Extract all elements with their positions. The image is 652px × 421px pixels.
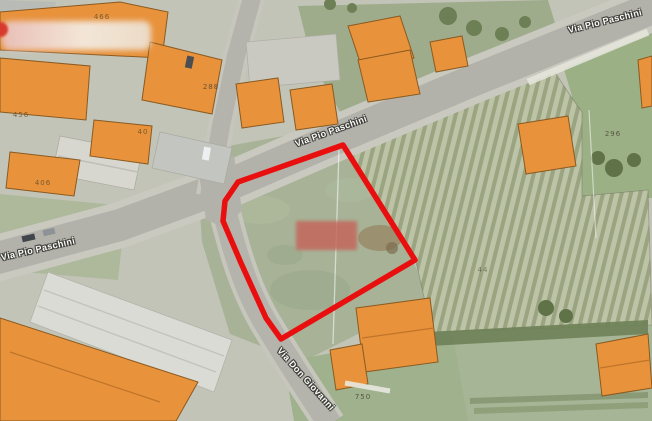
redaction-blur-parcel-label — [296, 221, 357, 250]
parcel-number: 296 — [605, 130, 621, 138]
parcel-number: 44 — [478, 266, 489, 274]
building — [518, 116, 576, 174]
parcel-number: 466 — [94, 13, 110, 21]
parcel-number: 288 — [203, 83, 219, 91]
map-canvas[interactable]: Via Pio Paschini Via Pio Paschini Via Pi… — [0, 0, 652, 421]
building — [356, 298, 438, 372]
building — [90, 120, 152, 164]
aerial-imagery — [0, 0, 652, 421]
parcel-number: 456 — [13, 111, 29, 119]
parcel-number: 406 — [35, 179, 51, 187]
building — [6, 152, 80, 196]
parcel-number: 40 — [138, 128, 149, 136]
parcel-number: 750 — [355, 393, 371, 401]
building — [596, 334, 652, 396]
building — [430, 36, 468, 72]
building — [290, 84, 338, 130]
redaction-blur-building-label — [2, 21, 151, 50]
building — [236, 78, 284, 128]
building — [358, 50, 420, 102]
